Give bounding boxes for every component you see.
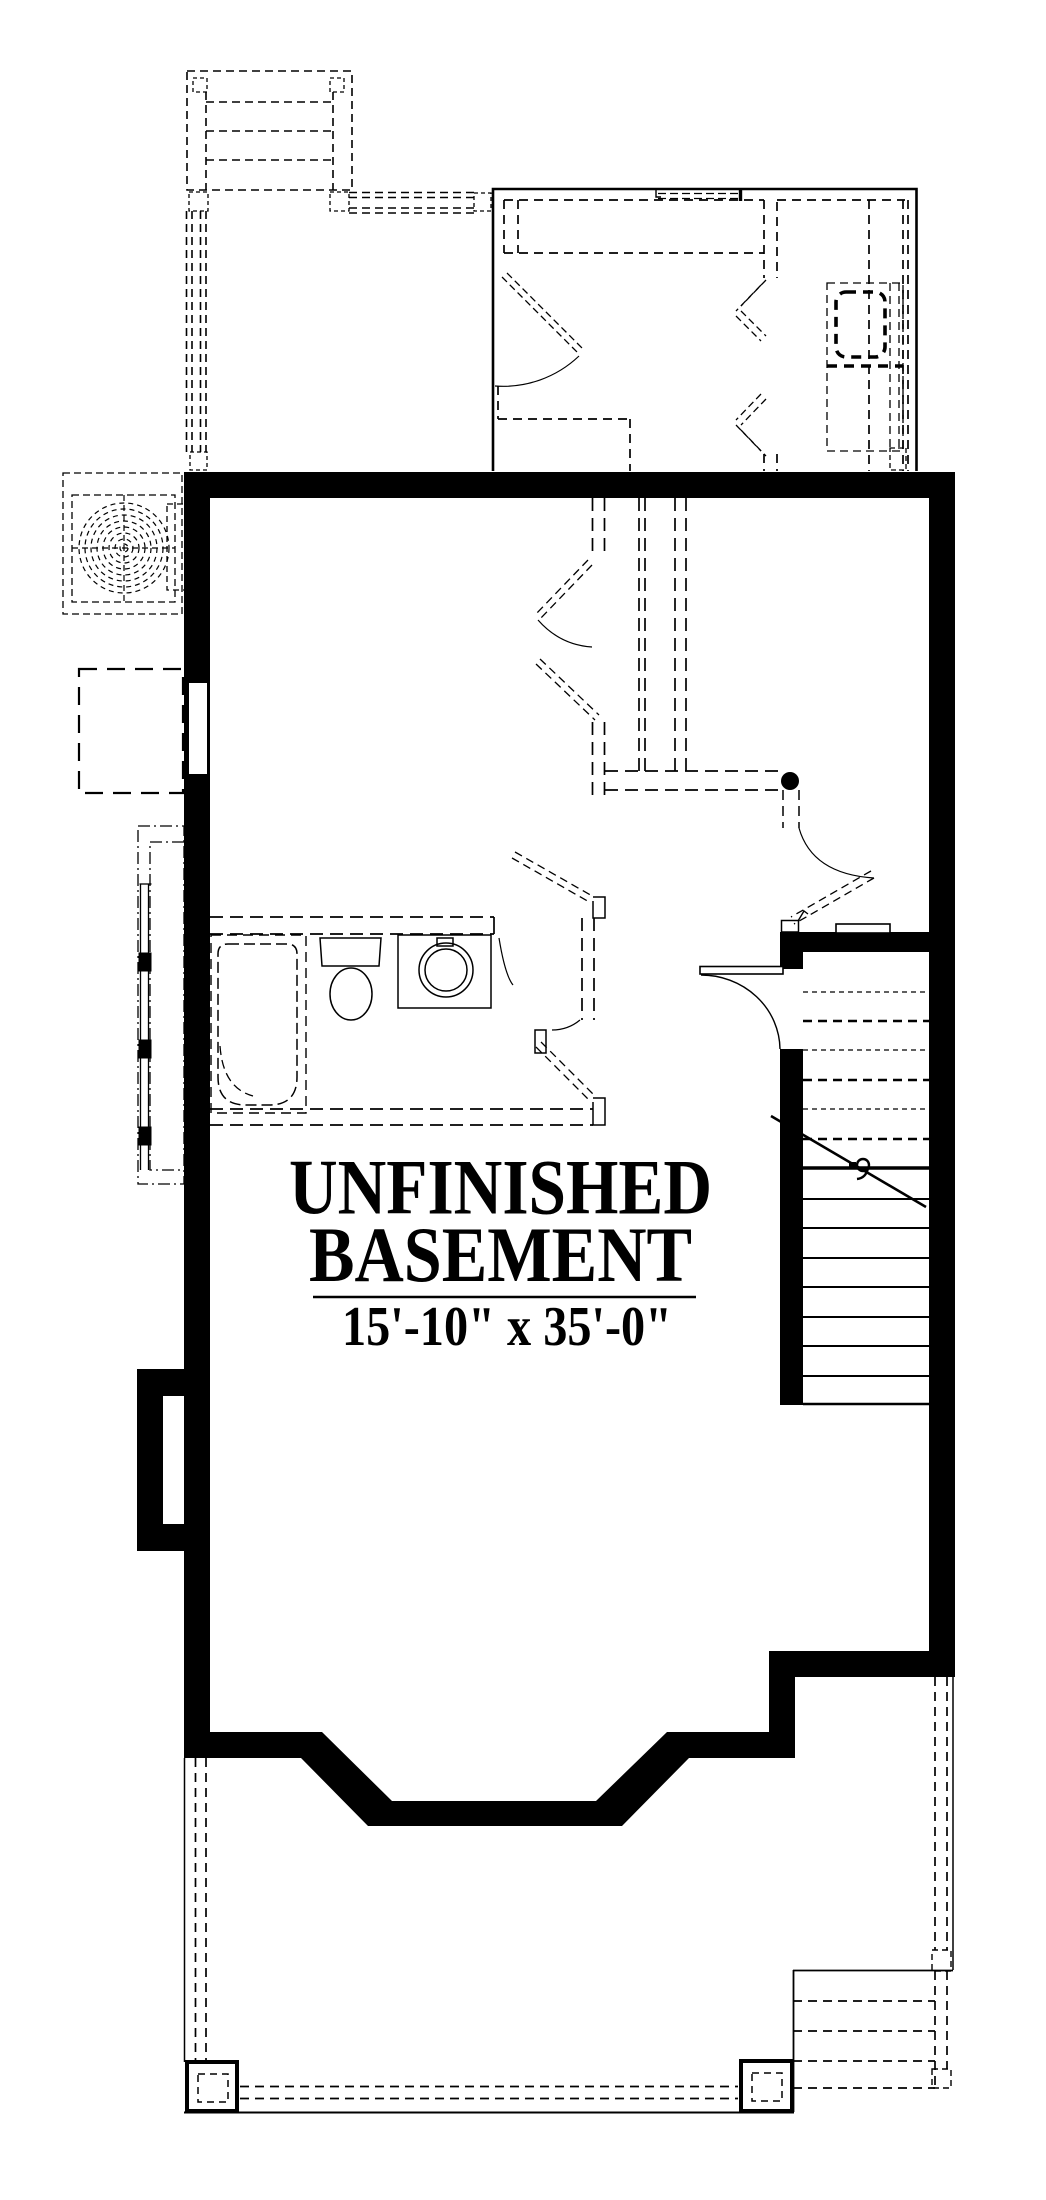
svg-text:BASEMENT: BASEMENT <box>309 1211 692 1298</box>
svg-text:15'-10" x 35'-0": 15'-10" x 35'-0" <box>342 1296 672 1358</box>
